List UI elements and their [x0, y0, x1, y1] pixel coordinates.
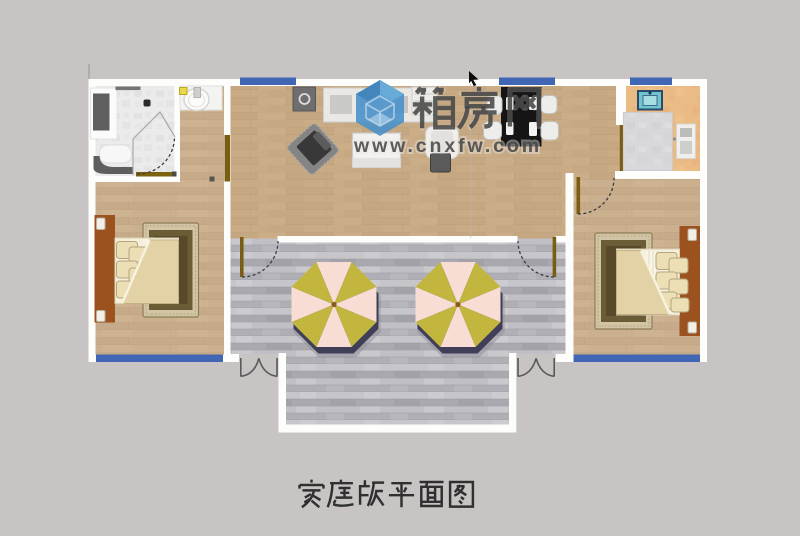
svg-text:www.cnxfw.com: www.cnxfw.com	[353, 135, 542, 157]
